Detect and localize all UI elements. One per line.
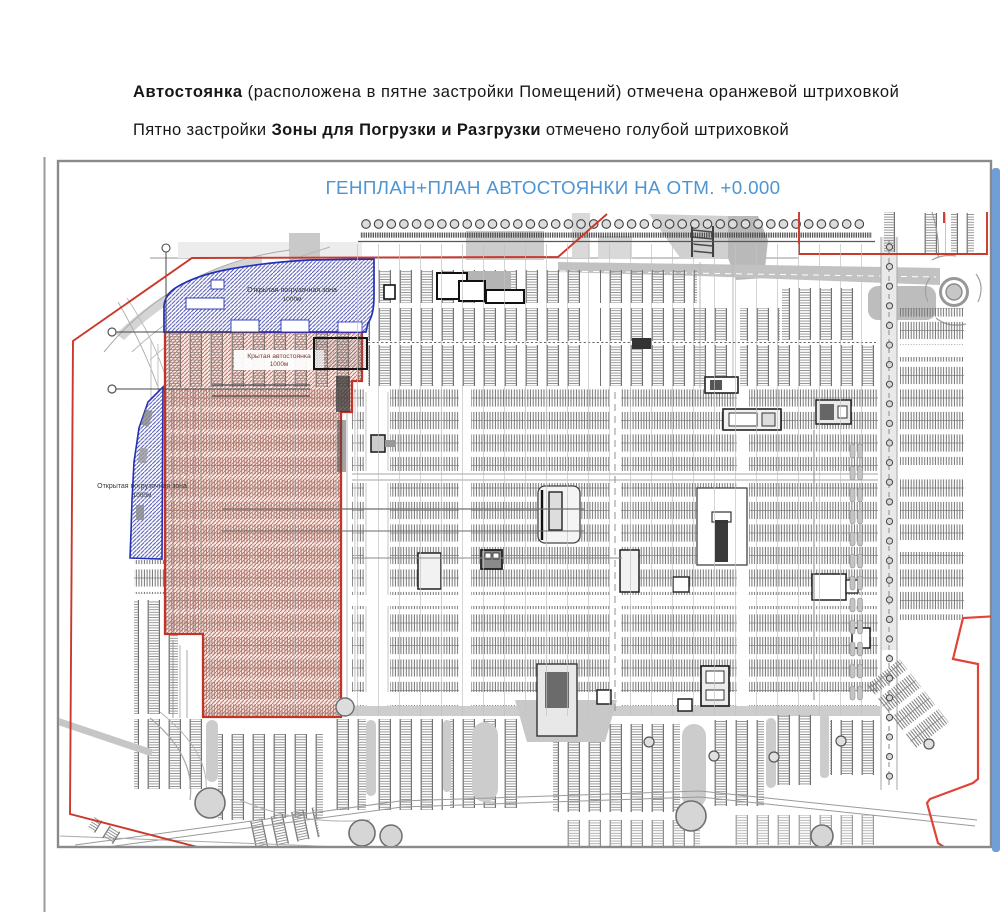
svg-text:Крытая автостоянка: Крытая автостоянка — [247, 353, 311, 360]
svg-text:1000м: 1000м — [283, 296, 302, 303]
svg-text:ГЕНПЛАН+ПЛАН АВТОСТОЯНКИ НА ОТ: ГЕНПЛАН+ПЛАН АВТОСТОЯНКИ НА ОТМ. +0.000 — [326, 177, 781, 198]
svg-text:Открытая погрузочная зона: Открытая погрузочная зона — [247, 287, 337, 294]
svg-text:1000м: 1000м — [133, 492, 152, 499]
svg-text:Открытая погрузочная зона: Открытая погрузочная зона — [97, 483, 187, 490]
svg-text:1000м: 1000м — [270, 361, 289, 368]
